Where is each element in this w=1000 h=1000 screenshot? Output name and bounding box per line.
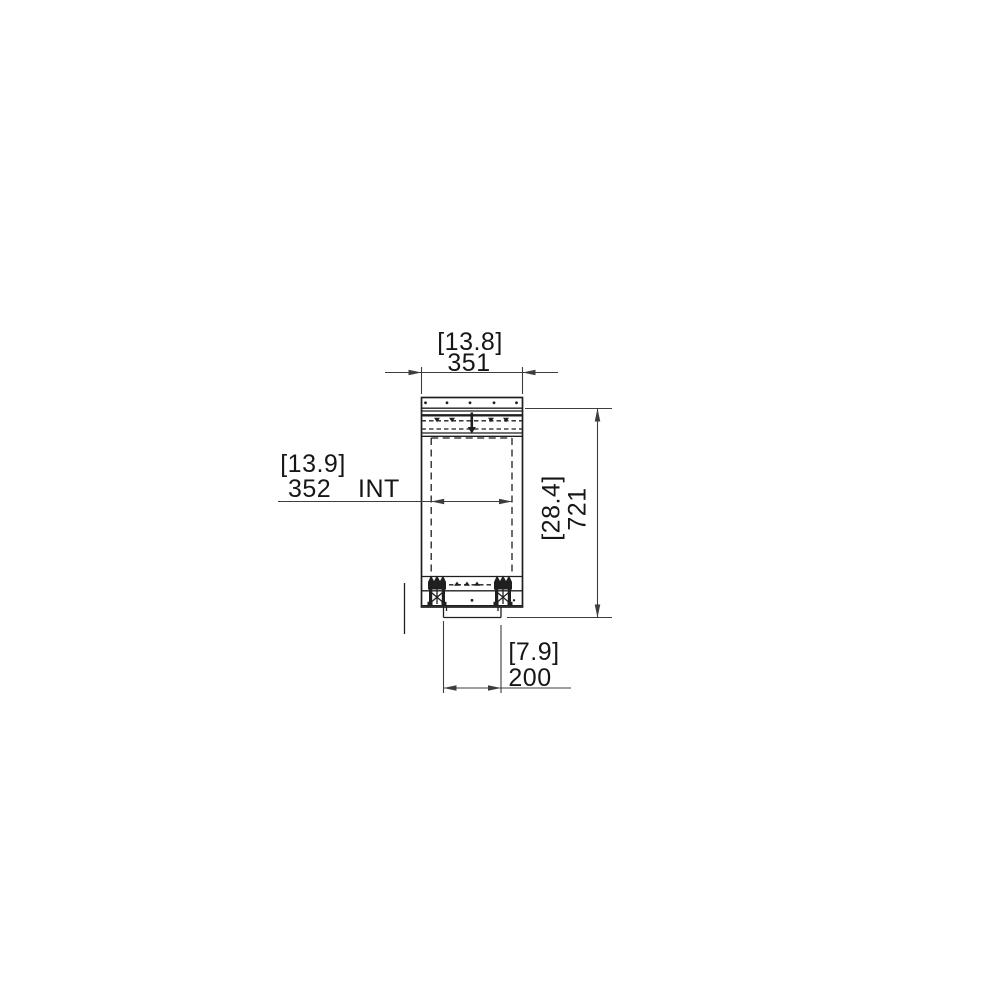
technical-drawing-page: [13.8] 351 [13.9] 352 INT [28.4] 721 [7.… (0, 0, 1000, 1000)
dim-height-converted: [28.4] (538, 475, 566, 541)
arrowhead-right-icon (488, 685, 501, 690)
dim-bottom-converted: [7.9] (508, 638, 559, 666)
dim-bottom-value: 200 (508, 664, 551, 692)
mounting-bracket-icon (428, 576, 447, 606)
screw-hole-dot (471, 599, 474, 602)
dim-internal-suffix: INT (358, 475, 400, 503)
arrowhead-left-icon (444, 685, 457, 690)
arrowhead-down-icon (595, 605, 601, 618)
arrowhead-right-icon (499, 499, 512, 504)
latch-tick-icons (454, 582, 480, 586)
arrowhead-right-icon (409, 370, 422, 376)
dim-internal-converted: [13.9] (280, 450, 346, 478)
dimension-internal-width: [13.9] 352 INT (278, 450, 512, 504)
screw-hole-dots (424, 401, 518, 404)
burner-section-drawing: [13.8] 351 [13.9] 352 INT [28.4] 721 [7.… (0, 0, 1000, 1000)
dim-internal-value: 352 (288, 475, 331, 503)
internal-hidden-lines (431, 438, 512, 577)
bottom-mechanism-band (422, 576, 523, 606)
dim-height-value: 721 (564, 487, 592, 530)
burner-body (405, 398, 523, 635)
dimension-bottom-width: [7.9] 200 (444, 621, 572, 693)
burner-tray-band (422, 411, 523, 436)
arrowhead-up-icon (595, 409, 601, 422)
arrowhead-left-icon (523, 370, 536, 376)
dimension-top-width: [13.8] 351 (385, 328, 558, 394)
arrowhead-left-icon (431, 499, 444, 504)
dim-top-value: 351 (447, 349, 490, 377)
screw-hole-dot (513, 599, 515, 601)
bottom-protrusion (444, 607, 502, 618)
mounting-bracket-icon (494, 576, 513, 606)
